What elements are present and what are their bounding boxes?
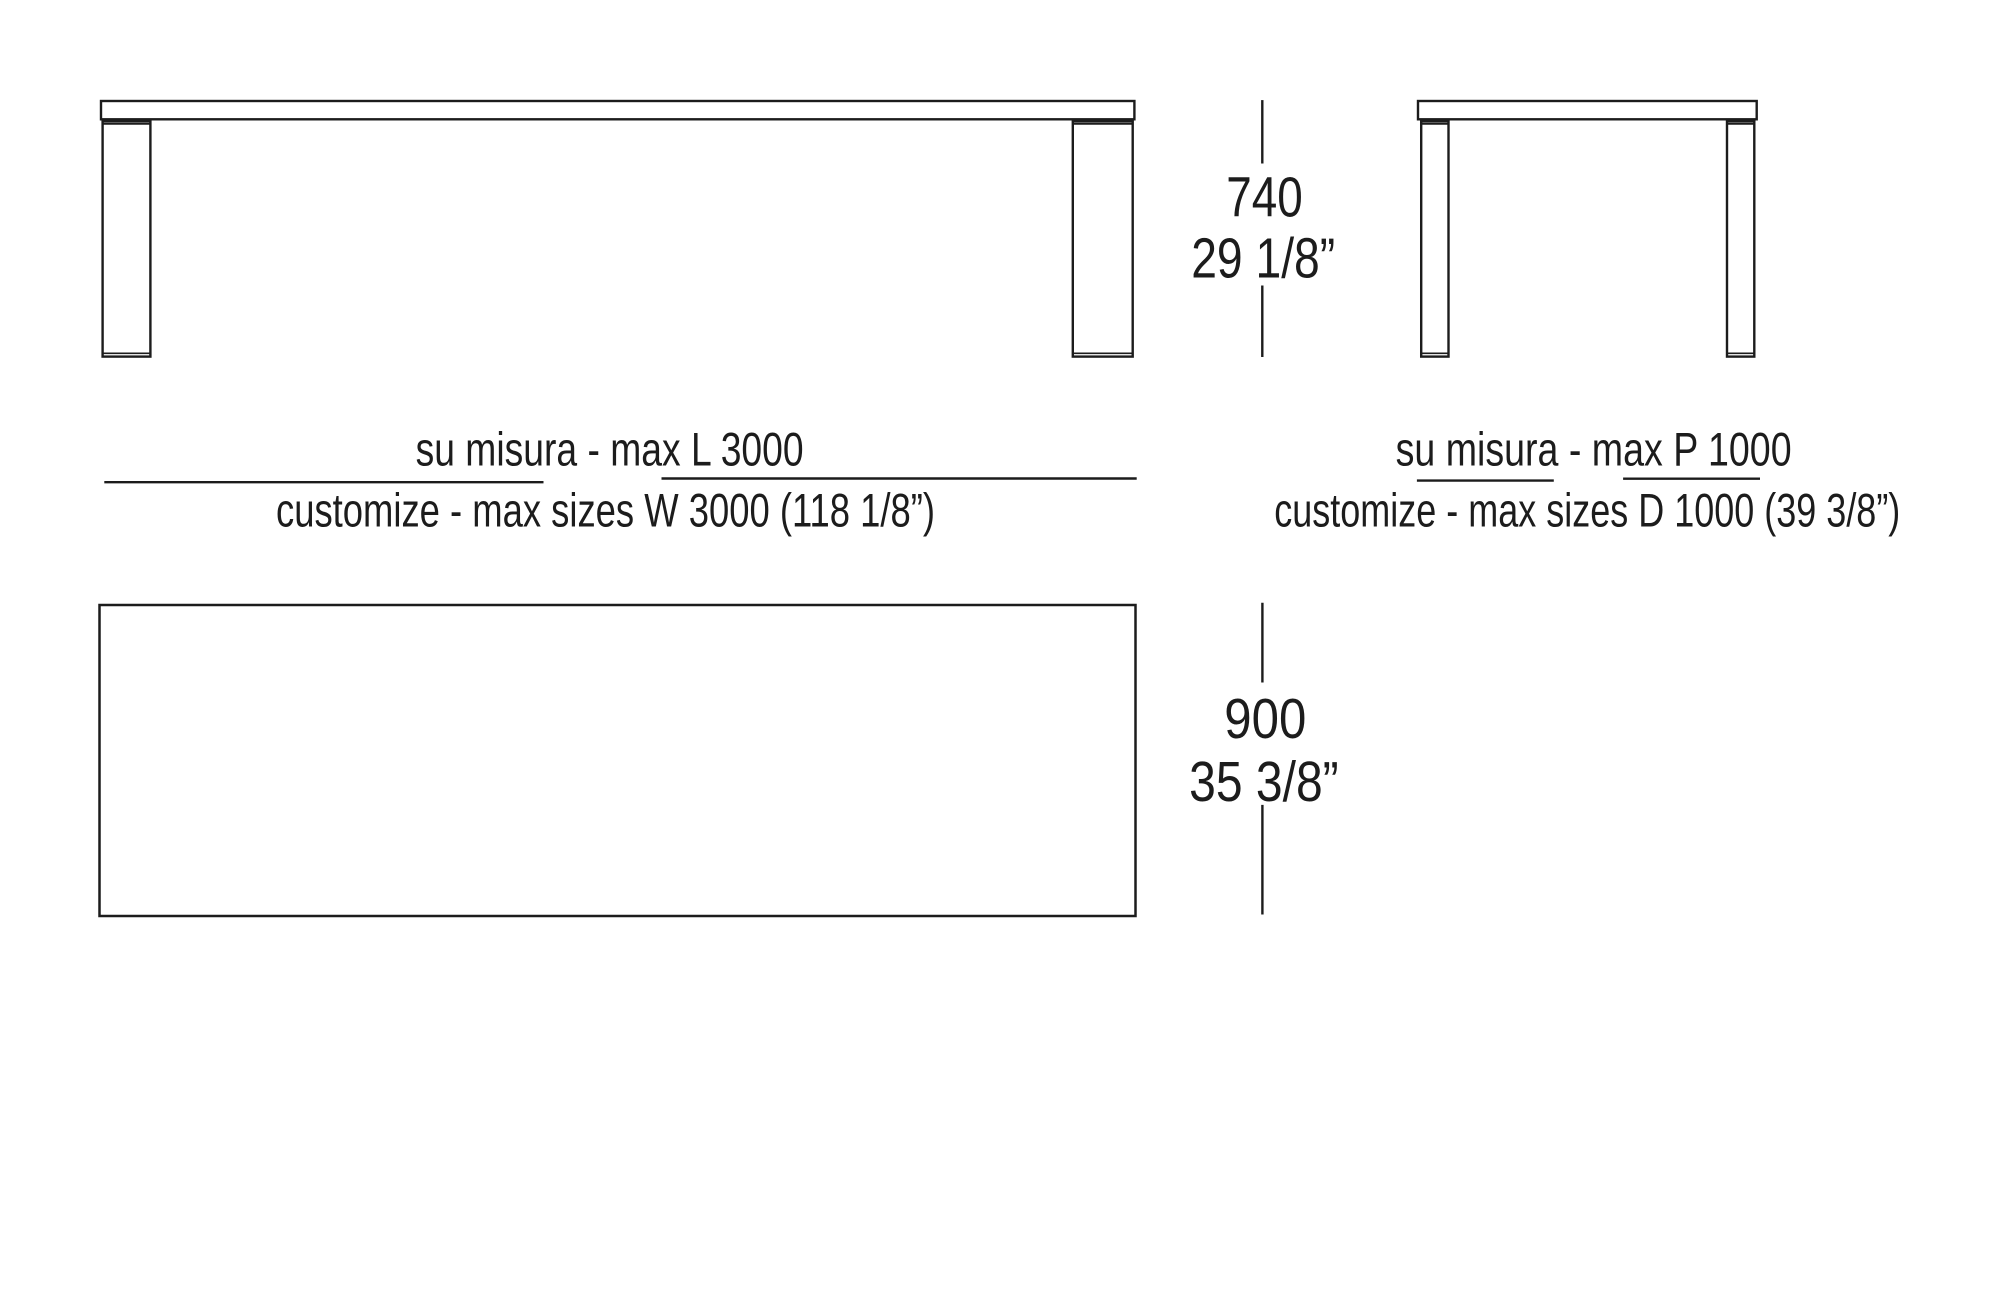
svg-text:customize - max sizes D 1000 (: customize - max sizes D 1000 (39 3/8”) (1274, 484, 1900, 537)
svg-text:740: 740 (1226, 166, 1303, 229)
svg-text:su misura - max L 3000: su misura - max L 3000 (416, 424, 804, 477)
svg-text:su misura - max P 1000: su misura - max P 1000 (1396, 424, 1792, 477)
svg-text:29 1/8”: 29 1/8” (1191, 227, 1335, 290)
svg-text:customize - max sizes W 3000 (: customize - max sizes W 3000 (118 1/8”) (276, 484, 935, 537)
svg-text:35 3/8”: 35 3/8” (1189, 750, 1339, 813)
svg-text:900: 900 (1224, 687, 1306, 750)
